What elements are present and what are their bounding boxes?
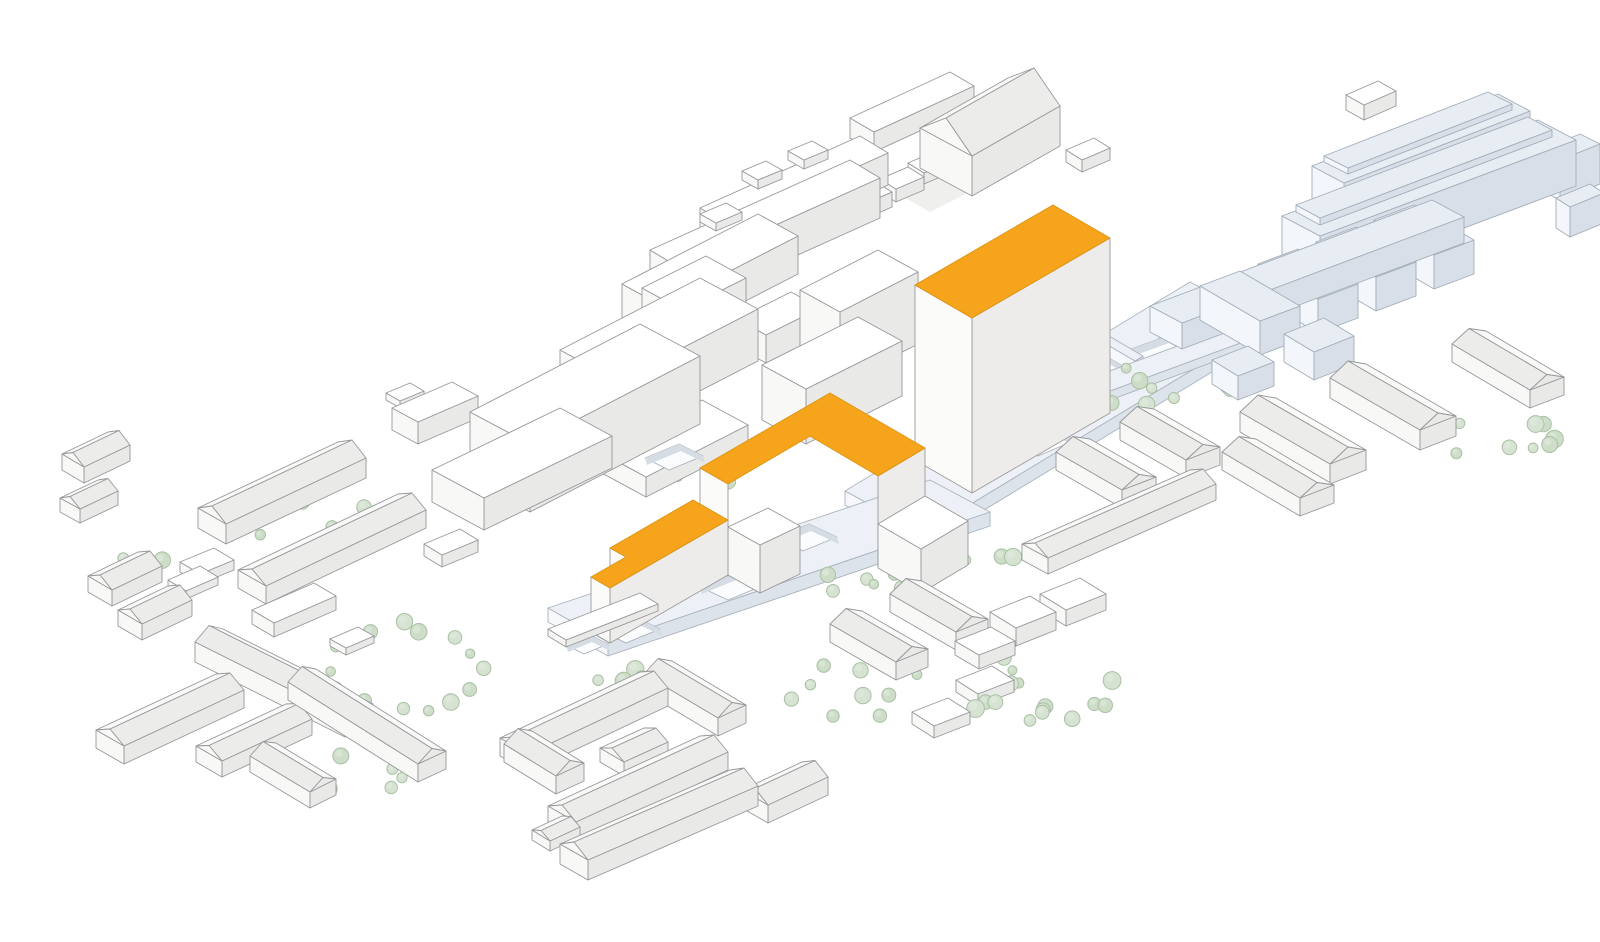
row-sw-3 [250,742,336,809]
tree [1147,383,1157,393]
tree [1005,548,1022,565]
tree [1121,363,1131,373]
tree [410,624,427,641]
tree [784,692,798,706]
tree [1542,437,1558,453]
tree [1024,715,1036,727]
tree [869,580,879,590]
tree [1132,373,1148,389]
tree [853,663,868,678]
tree [385,781,397,793]
scene-root [60,68,1600,880]
tree [448,631,462,645]
tree [1098,698,1112,712]
tree [873,709,886,722]
tree [397,702,409,714]
tree [255,530,265,540]
house-edge-1 [62,431,130,484]
tree [1527,416,1544,433]
tree [333,748,349,764]
tree [593,675,604,686]
tree [423,706,433,716]
small-box-mid [424,529,478,567]
tree [466,649,475,658]
axonometric-site-plan [0,0,1600,942]
tree [477,661,491,675]
site-axonometric-diagram [0,0,1600,942]
tree [827,585,840,598]
tree [1064,711,1080,727]
tree [988,695,1003,710]
tree [463,683,477,697]
tree [1502,440,1517,455]
north-cube-d [1066,138,1110,172]
row-east-5 [1452,329,1564,409]
tree [397,773,407,783]
tree [1008,666,1017,675]
north-cube-e [1346,81,1396,120]
house-edge-2 [60,479,118,524]
tree [1451,448,1462,459]
tree [1103,672,1121,690]
tree [827,710,839,722]
tree [1168,393,1179,404]
tree [820,567,835,582]
tree [1528,443,1538,453]
row-east-4 [1330,361,1456,450]
tree [396,614,412,630]
tree [882,688,896,702]
tree [855,687,871,703]
shed-diag-2 [912,698,970,738]
tree [443,694,460,711]
tree [817,659,830,672]
tree [326,667,336,677]
tree [805,680,815,690]
tree [1035,705,1049,719]
